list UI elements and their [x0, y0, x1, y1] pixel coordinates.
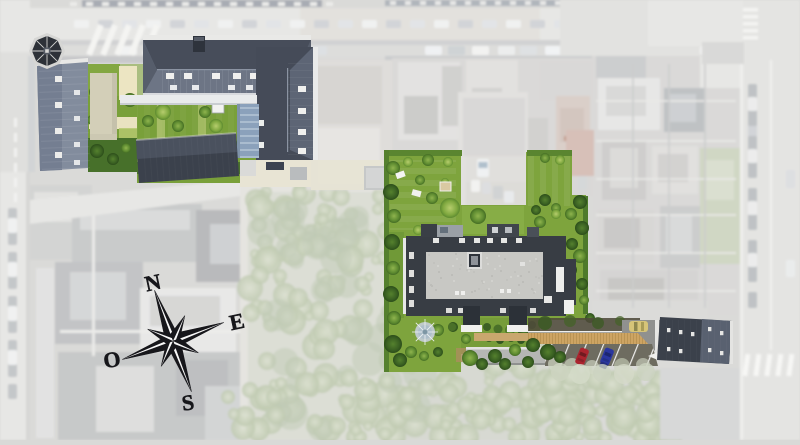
- svg-text:O: O: [102, 346, 122, 373]
